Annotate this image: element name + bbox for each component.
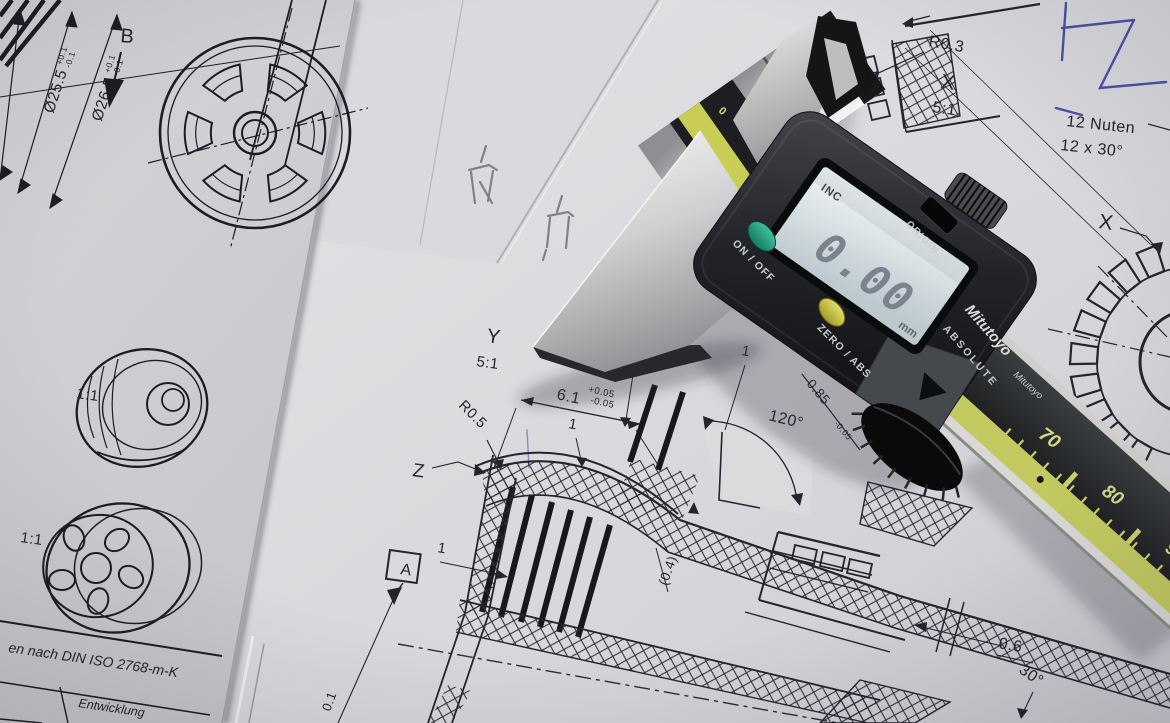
photo-caliper-on-drawings: R0.3 X 5:1 12 Nuten 12 x 30° X [0, 0, 1170, 723]
vignette-overlay [0, 0, 1170, 723]
